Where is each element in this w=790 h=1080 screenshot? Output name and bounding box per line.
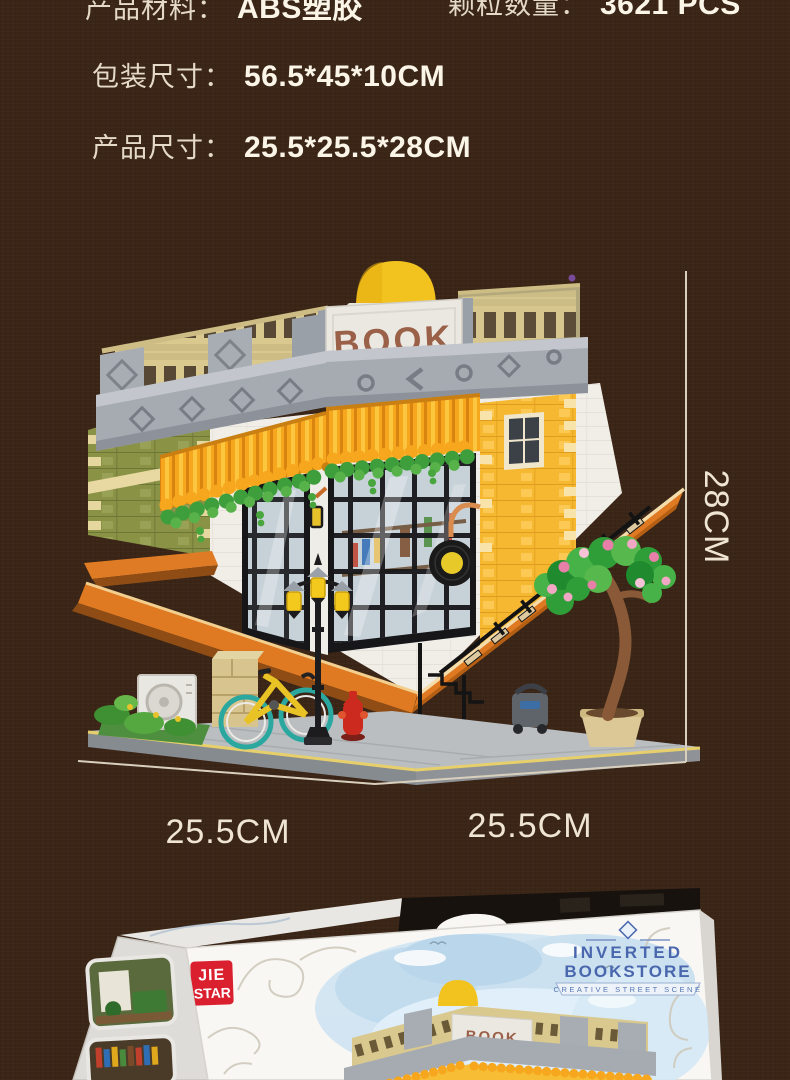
spec-product-label: 产品尺寸： — [92, 126, 232, 165]
spec-package-label: 包装尺寸： — [92, 55, 232, 94]
spec-package-size: 包装尺寸： 56.5*45*10CM — [92, 55, 445, 94]
spec-package-value: 56.5*45*10CM — [244, 60, 445, 94]
package-box: BOOK JIE STAR INVERTED BOOKSTORE — [73, 888, 722, 1080]
tree — [534, 536, 676, 747]
side-panel-photo-2 — [87, 1036, 175, 1080]
side-panel-photo-1 — [87, 955, 177, 1029]
dimension-label-width-left: 25.5CM — [165, 813, 290, 851]
bookstore-model: BOOK — [72, 261, 700, 785]
spec-material-value: ABS塑胶 — [237, 0, 363, 27]
spec-material: 产品材料： ABS塑胶 — [85, 0, 363, 27]
dimension-label-height: 28CM — [697, 470, 730, 565]
spec-pieces-label: 颗粒数量： — [448, 0, 588, 22]
box-title-line1: INVERTED — [573, 943, 683, 962]
spec-product-value: 25.5*25.5*28CM — [244, 131, 471, 165]
cart-machine — [512, 686, 548, 734]
brand-logo: JIE STAR — [190, 960, 234, 1005]
box-title-line2: BOOKSTORE — [564, 962, 691, 981]
brand-logo-line2: STAR — [194, 984, 232, 1001]
spec-pieces: 颗粒数量： 3621 PCS — [448, 0, 741, 22]
product-detail-page: { "specs": { "material_label": "产品材料：", … — [0, 0, 790, 1080]
dimension-label-width-right: 25.5CM — [467, 807, 592, 845]
spec-product-size: 产品尺寸： 25.5*25.5*28CM — [92, 126, 471, 165]
brand-logo-line1: JIE — [198, 967, 226, 985]
product-photo: BOOK — [60, 245, 730, 870]
side-window — [504, 412, 544, 470]
spec-pieces-value: 3621 PCS — [600, 0, 741, 22]
spec-material-label: 产品材料： — [85, 0, 225, 26]
box-tagline: CREATIVE STREET SCENE — [554, 985, 703, 994]
package-box-photo: BOOK JIE STAR INVERTED BOOKSTORE — [0, 888, 790, 1080]
